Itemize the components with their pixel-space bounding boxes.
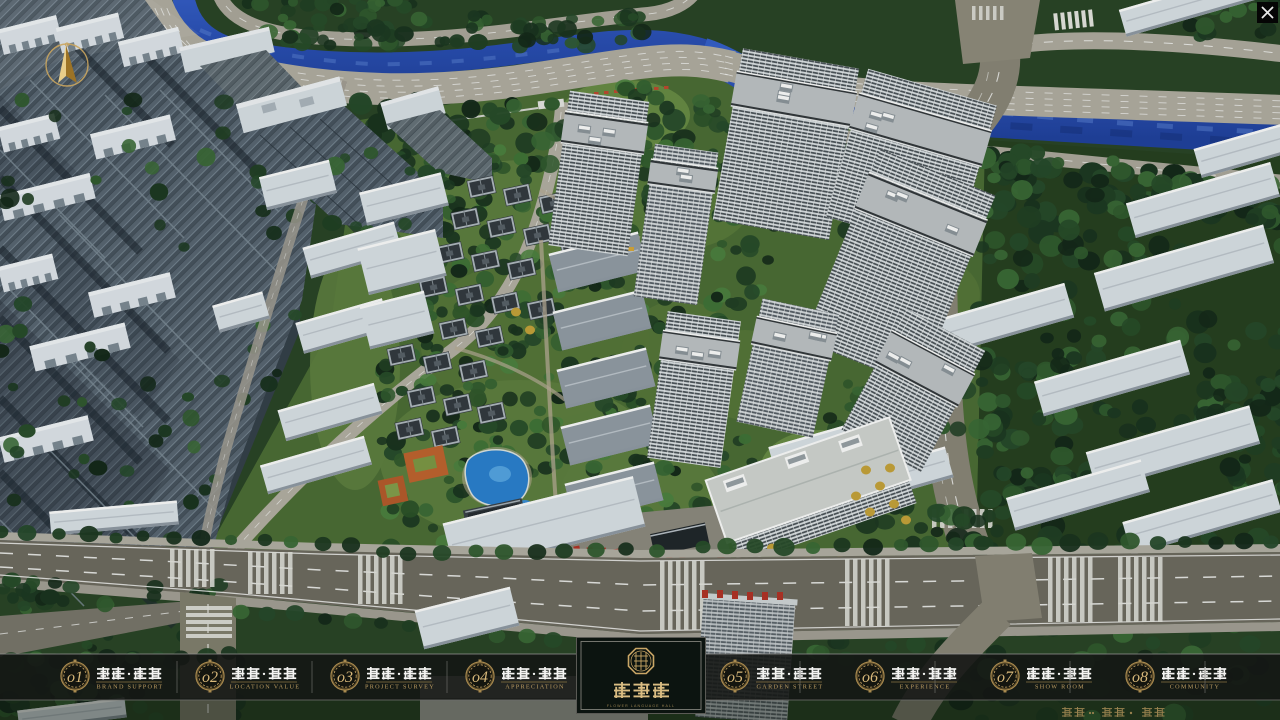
svg-text:o2: o2 — [202, 669, 218, 686]
svg-text:o8: o8 — [1132, 669, 1148, 686]
svg-text:APPRECIATION: APPRECIATION — [505, 684, 565, 691]
svg-text:o1: o1 — [67, 669, 83, 686]
svg-text:o5: o5 — [727, 669, 743, 686]
svg-text:o4: o4 — [472, 669, 488, 686]
svg-text:LOCATION VALUE: LOCATION VALUE — [230, 684, 301, 691]
svg-text:EXPERIENCE: EXPERIENCE — [900, 684, 951, 691]
svg-text:COMMUNITY: COMMUNITY — [1170, 684, 1221, 691]
svg-text:SHOW ROOM: SHOW ROOM — [1035, 684, 1085, 691]
svg-text:GARDEN STREET: GARDEN STREET — [757, 684, 824, 691]
svg-text:o7: o7 — [997, 669, 1014, 686]
svg-text:BRAND SUPPORT: BRAND SUPPORT — [97, 684, 164, 691]
svg-text:FLOWER LANGUAGE HALL: FLOWER LANGUAGE HALL — [607, 704, 675, 708]
svg-text:PROJECT SURVEY: PROJECT SURVEY — [365, 684, 435, 691]
svg-text:o3: o3 — [337, 669, 353, 686]
svg-text:o6: o6 — [862, 669, 878, 686]
